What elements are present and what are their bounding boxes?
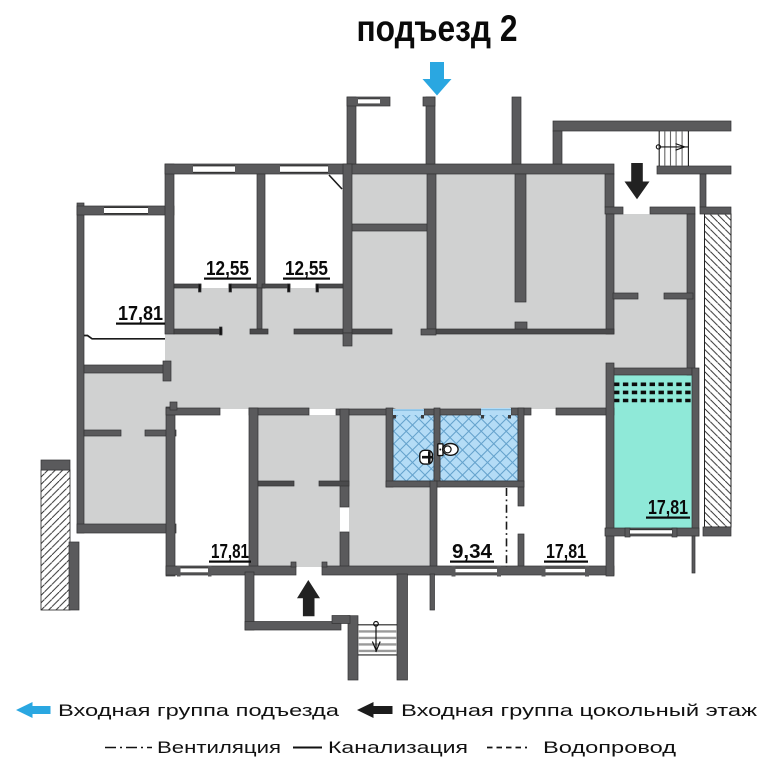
svg-text:17,81: 17,81	[211, 541, 249, 563]
svg-text:17,81: 17,81	[648, 497, 688, 519]
svg-text:Входная группа подъезда: Входная группа подъезда	[58, 701, 340, 720]
svg-text:12,55: 12,55	[206, 258, 249, 280]
svg-text:Канализация: Канализация	[328, 738, 468, 757]
svg-text:9,34: 9,34	[452, 541, 493, 563]
svg-text:17,81: 17,81	[546, 541, 586, 563]
svg-text:17,81: 17,81	[118, 303, 163, 325]
svg-text:Входная группа цокольный этаж: Входная группа цокольный этаж	[401, 701, 758, 720]
svg-text:12,55: 12,55	[285, 258, 328, 280]
svg-text:подъезд 2: подъезд 2	[357, 8, 518, 49]
svg-text:Водопровод: Водопровод	[543, 738, 676, 757]
svg-text:Вентиляция: Вентиляция	[157, 738, 281, 757]
